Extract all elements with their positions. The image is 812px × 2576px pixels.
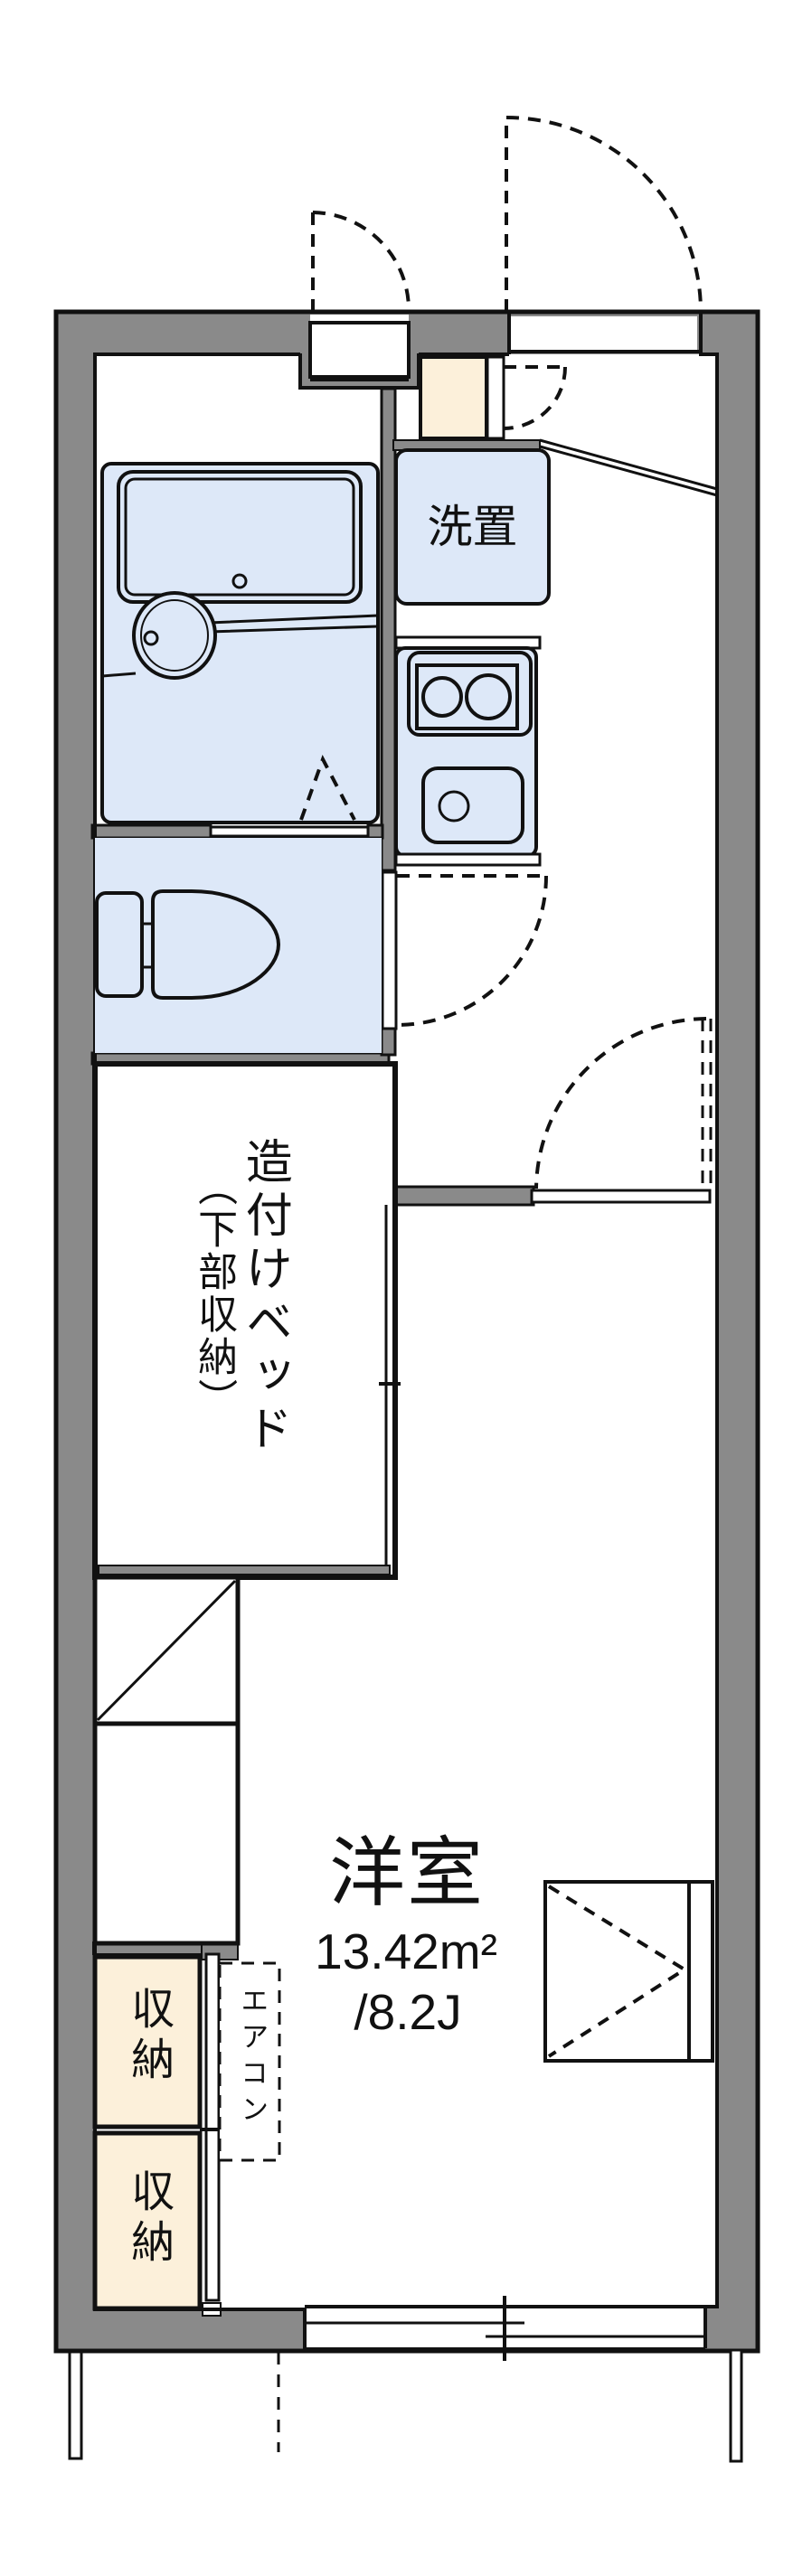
entrance-area [420,357,504,438]
basin-faucet [145,632,157,644]
window-swing-arc [313,212,409,312]
storage-partition-wall [206,1954,219,2300]
bed-lower-storage-label: （下部収納） [193,1166,234,1421]
aircon-label: エアコン [237,1986,267,2130]
balcony [70,2350,741,2461]
kitchen-partition-line [540,440,717,495]
entrance-door-arc [506,118,701,312]
floorplan-drawing [0,0,812,2576]
shoe-cabinet-door-arc [504,367,565,428]
bed-step-box [95,1577,238,1724]
washer-space-label: 洗置 [396,450,549,604]
bay-window [545,1882,713,2061]
toilet-tank [97,893,142,996]
toilet-door-slot [382,872,396,1029]
floorplan-page: 洗置 造付けベッド （下部収納） 洋室 13.42m² /8.2J 収納 収納 … [0,0,812,2576]
room-name-label: 洋室 [329,1833,485,1913]
built-in-bed-label: 造付けベッド [240,1137,289,1457]
toilet-room [95,838,382,1053]
bathroom-door-threshold [211,827,368,836]
room-area-label: 13.42m² [315,1926,497,1979]
washbasin [134,593,215,678]
room-door-threshold [532,1190,710,1202]
bathroom-unit [102,464,378,823]
room-door-panel [703,1019,711,1190]
toilet-door-arc [397,876,546,1025]
room-door-arc [536,1019,706,1189]
room-tatami-label: /8.2J [354,1987,461,2039]
shoe-cabinet [420,357,486,438]
kitchen-unit [396,637,540,865]
entry-window-recess [310,323,409,377]
tub-drain [233,575,246,588]
storage-upper-label: 収納 [125,1986,170,2087]
counter-box [95,1724,238,1943]
storage-lower-label: 収納 [125,2168,170,2270]
